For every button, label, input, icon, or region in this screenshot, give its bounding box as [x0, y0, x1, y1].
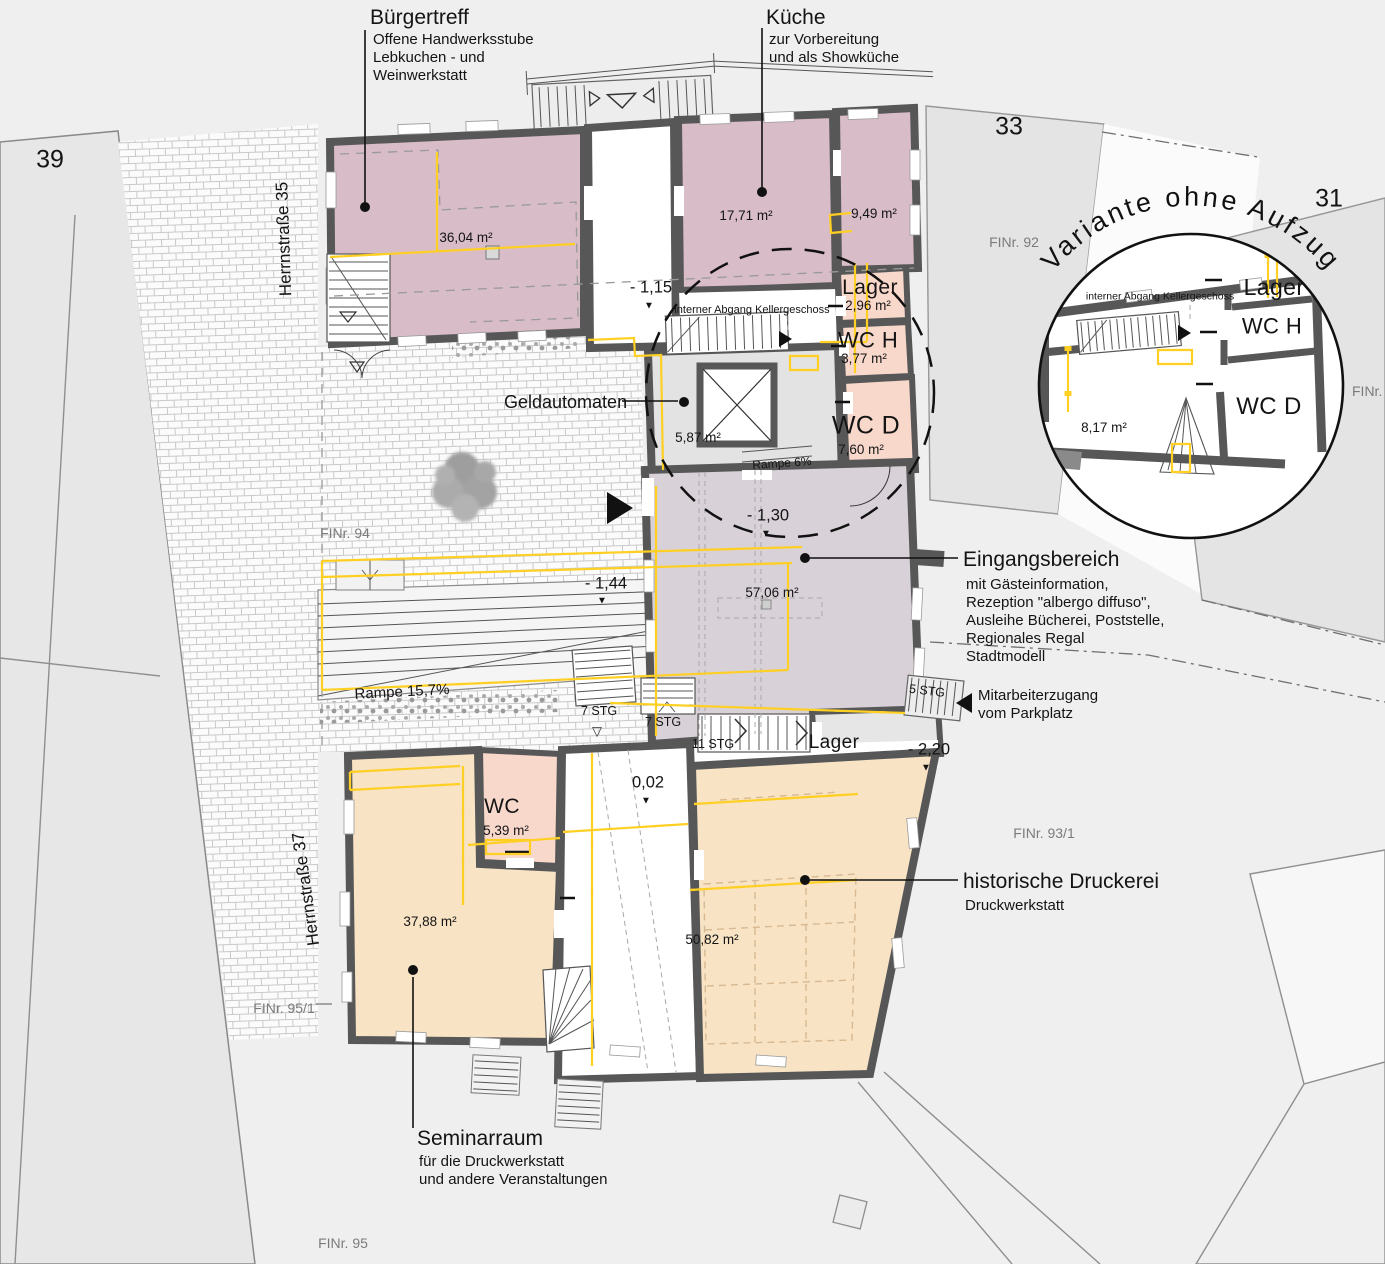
area-seminarraum: 37,88 m²	[403, 914, 456, 930]
stair-label-11stg: 11 STG	[692, 737, 734, 751]
level-130: - 1,30	[747, 507, 789, 526]
level-144-marker-icon: ▼	[597, 595, 607, 607]
area-wc-h: 3,77 m²	[841, 351, 887, 367]
level-115: - 1,15	[630, 279, 672, 298]
label-geldautomaten: Geldautomaten	[504, 392, 627, 413]
area-eingangsbereich: 57,06 m²	[745, 585, 798, 601]
label-mitarbeiterzugang: Mitarbeiterzugang vom Parkplatz	[978, 687, 1098, 723]
room-corridor-north	[588, 122, 676, 348]
parcel-finr95-1: FINr. 95/1	[253, 1000, 314, 1016]
leader-dot-buergertreff	[360, 202, 370, 212]
label-druckerei-desc: Druckwerkstatt	[965, 897, 1064, 915]
level-130-marker-icon: ▼	[761, 528, 771, 540]
level-115-marker-icon: ▼	[644, 300, 654, 312]
room-label-wc-sued: WC	[484, 795, 520, 819]
site-plan: Variante ohne Aufzug Bürgertreff Offene …	[0, 0, 1385, 1264]
level-002: 0,02	[632, 774, 664, 793]
plan-drawing: Variante ohne Aufzug	[0, 0, 1385, 1264]
level-002-marker-icon: ▼	[641, 795, 651, 807]
leader-dot-kueche	[757, 187, 767, 197]
parcel-number-33: 33	[995, 113, 1023, 142]
label-druckerei-title: historische Druckerei	[963, 870, 1159, 894]
parcel-number-39: 39	[36, 146, 64, 175]
parcel-finr95: FINr. 95	[318, 1235, 368, 1251]
room-label-wc-d: WC D	[832, 412, 900, 441]
area-lager-nord: 2,96 m²	[845, 298, 891, 314]
label-eingangsbereich-desc: mit Gästeinformation, Rezeption "albergo…	[966, 576, 1164, 666]
room-label-wc-h: WC H	[838, 327, 898, 352]
inset-area-label: 8,17 m²	[1081, 420, 1127, 436]
label-seminarraum-title: Seminarraum	[417, 1127, 543, 1151]
stair-exterior-sw	[471, 1055, 521, 1095]
stair-exterior-sued	[555, 1079, 603, 1129]
stair-7stg-marker-icon: ▽	[592, 725, 602, 740]
parcel-finr93-1: FINr. 93/1	[1013, 825, 1074, 841]
parcel-number-31: 31	[1315, 185, 1343, 214]
level-220: - 2,20	[908, 741, 950, 760]
stair-interner-abgang	[665, 312, 788, 354]
label-interner-abgang: interner Abgang Kellergeschoss	[674, 304, 829, 316]
room-nebenraum	[836, 108, 918, 270]
level-144: - 1,44	[585, 575, 627, 594]
parcel-finr9: FINr. 9	[1352, 383, 1385, 399]
area-wc-d: 7,60 m²	[838, 442, 884, 458]
label-buergertreff-desc: Offene Handwerksstube Lebkuchen - und We…	[373, 31, 534, 85]
stair-winder	[543, 966, 594, 1052]
label-buergertreff-title: Bürgertreff	[370, 6, 469, 30]
parcel-finr94: FINr. 94	[320, 525, 370, 541]
parcel-finr92: FINr. 92	[989, 234, 1039, 250]
area-druckerei: 50,82 m²	[685, 932, 738, 948]
level-220-marker-icon: ▼	[921, 762, 931, 774]
label-seminarraum-desc: für die Druckwerkstatt und andere Verans…	[419, 1153, 608, 1189]
inset-room-label-wc-h: WC H	[1242, 313, 1302, 338]
area-nebenraum: 9,49 m²	[851, 206, 897, 222]
room-kueche	[678, 114, 836, 292]
inset-variant: Variante ohne Aufzug	[1035, 181, 1347, 538]
room-label-lager-nord: Lager	[842, 276, 898, 300]
stair-7stg-innen	[641, 678, 695, 714]
label-kueche-desc: zur Vorbereitung und als Showküche	[769, 31, 899, 67]
room-label-lager-sued: Lager	[809, 732, 860, 754]
area-buergertreff: 36,04 m²	[439, 230, 492, 246]
leader-dot-seminarraum	[408, 965, 418, 975]
inset-room-label-lager: Lager	[1244, 274, 1305, 300]
label-eingangsbereich-title: Eingangsbereich	[963, 548, 1119, 572]
leader-dot-druckerei	[800, 875, 810, 885]
street-label-herrnstrasse-35: Herrnstraße 35	[272, 182, 296, 297]
leader-dot-eingangsbereich	[800, 553, 810, 563]
stair-label-7stg-innen: 7 STG	[645, 715, 681, 729]
area-kueche: 17,71 m²	[719, 208, 772, 224]
label-kueche-title: Küche	[766, 6, 826, 30]
leader-dot-geldautomaten	[679, 397, 689, 407]
area-wc-sued: 5,39 m²	[483, 823, 529, 839]
area-aufzug-lobby: 5,87 m²	[675, 430, 721, 446]
inset-room-label-wc-d: WC D	[1236, 393, 1302, 421]
stair-label-7stg-hof: 7 STG	[581, 704, 617, 718]
stair-buergertreff	[327, 254, 390, 342]
inset-label-interner-abgang: interner Abgang Kellergeschoss	[1086, 291, 1234, 303]
